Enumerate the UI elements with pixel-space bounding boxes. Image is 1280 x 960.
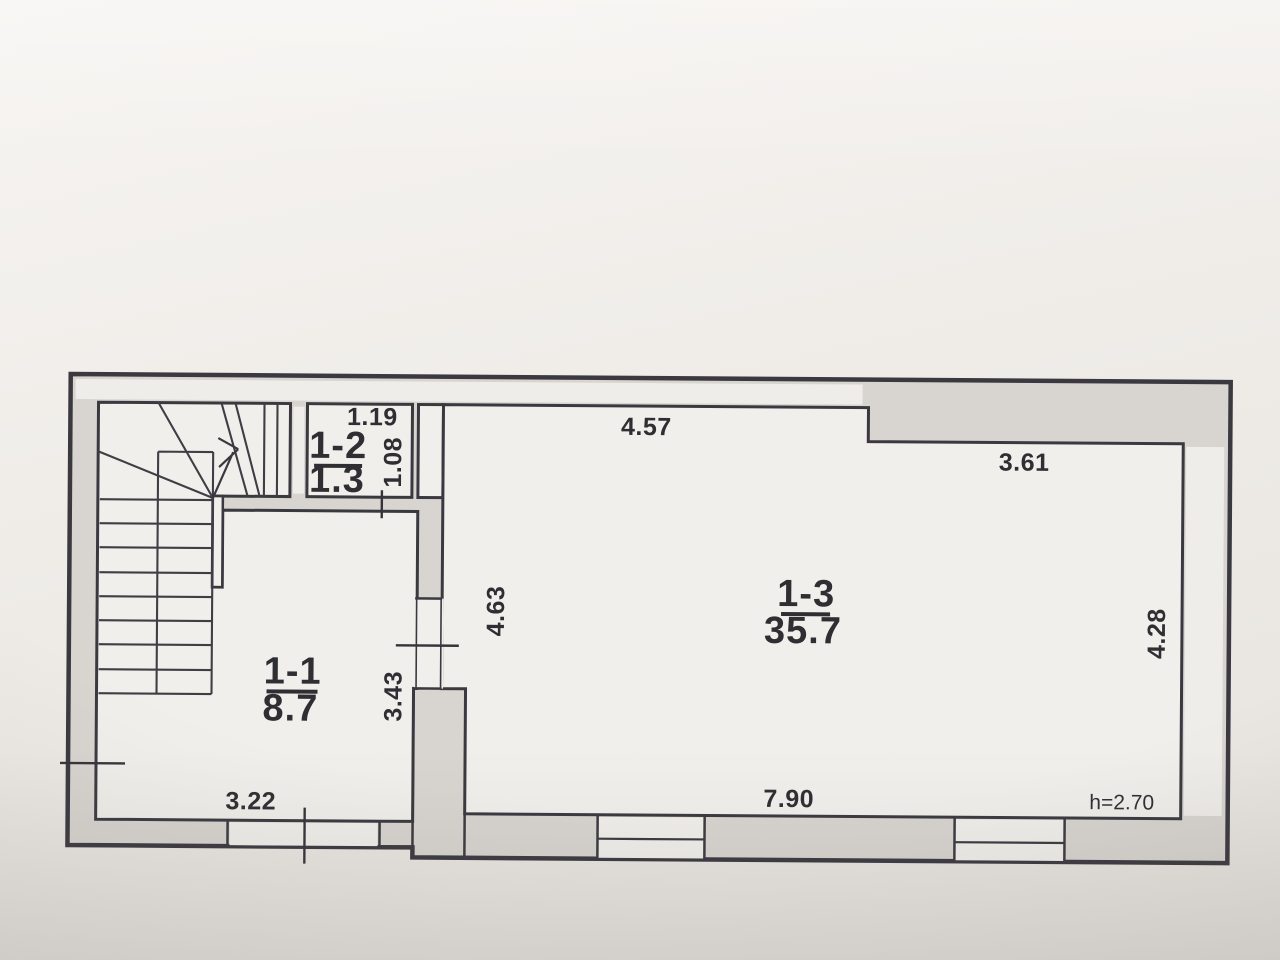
dim-room3-top-right: 3.61 [999,449,1050,477]
room-1-3-area: 35.7 [764,610,842,653]
right-wall-cavity [1184,447,1225,816]
room-1-1-label: 1-1 [264,650,322,692]
window-2-opening [954,819,1064,861]
stair-wall-stub [212,496,223,587]
dim-room1-bottom: 3.22 [225,787,276,815]
dim-room3-bottom: 7.90 [763,785,814,813]
dim-room2-depth: 1.08 [379,437,407,488]
room-1-1-label-group: 1-1 8.7 [262,650,321,729]
room-1-3-label: 1-3 [777,573,835,615]
stair-partition-cavity [293,407,305,494]
room-1-2-area: 1.3 [309,459,365,501]
window-1-opening [597,817,704,859]
duct-shaft [418,404,444,497]
room-1-2-label-group: 1-2 1.3 [309,425,367,501]
door-opening [414,598,444,688]
ceiling-height-note: h=2.70 [1089,791,1154,814]
dim-room3-top-left: 4.57 [621,413,672,441]
dim-room2-width: 1.19 [347,403,398,431]
floor-plan-drawing: 1-1 8.7 1-2 1.3 1-3 35.7 1.19 1.08 4.57 … [0,0,1280,960]
floor-plan-photo: 1-1 8.7 1-2 1.3 1-3 35.7 1.19 1.08 4.57 … [0,0,1280,960]
dim-room3-left: 4.63 [482,586,510,637]
dim-partition-wall: 3.43 [379,671,407,722]
room-1-1-area: 8.7 [262,687,318,729]
dim-room3-right: 4.28 [1143,608,1171,659]
